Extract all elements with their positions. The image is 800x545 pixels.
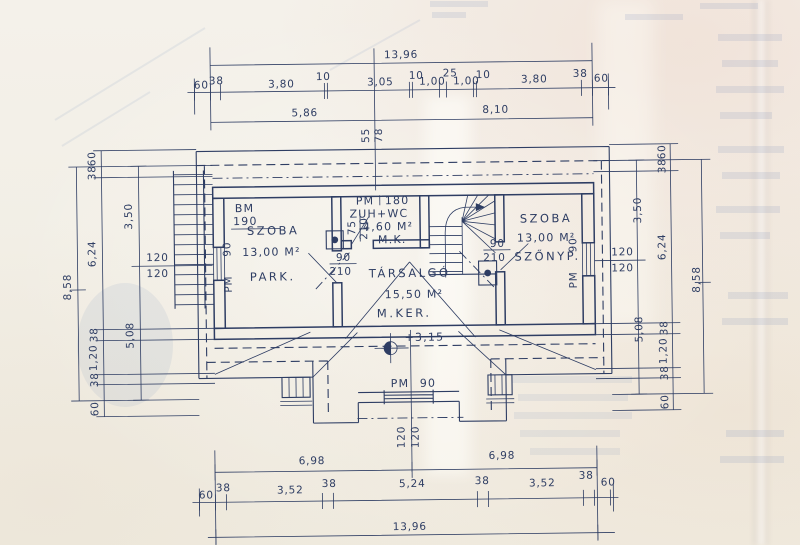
- window-left-pm: PM: [223, 276, 235, 293]
- dim-left-chain-2: 6,24: [86, 240, 98, 267]
- dim-bottom-window-1: 120: [410, 426, 422, 449]
- dim-bottom-total: 13,96: [393, 521, 427, 533]
- window-right-pm: PM: [568, 271, 580, 288]
- dim-top-10: 3,80: [521, 73, 548, 85]
- dim-left-window-0: 120: [146, 252, 169, 264]
- dim-left-inner-1: 5,08: [124, 322, 136, 349]
- dim-left-chain-4: 1,20: [88, 344, 100, 371]
- dim-top-wall-55: 55: [360, 128, 372, 143]
- lounge-window-pm: PM: [391, 377, 410, 390]
- dim-right-chain-6: 60: [659, 394, 671, 409]
- room-left-door-h: 210: [329, 266, 352, 278]
- dim-left-chain-1: 38: [86, 165, 98, 180]
- dim-right-total: 8,58: [691, 266, 703, 293]
- dim-right-chain-1: 38: [656, 158, 668, 173]
- exterior-stair-ladder: [173, 170, 214, 308]
- room-right-door-h: 210: [483, 252, 506, 264]
- room-left-labels: BM 190 SZOBA 13,00 M² PARK. 90 210 90 PM: [221, 201, 357, 293]
- room-lounge-name: TÁRSALGÓ: [368, 264, 451, 280]
- dim-left-chain-3: 38: [88, 327, 100, 342]
- dim-top-9: 10: [476, 69, 491, 81]
- dim-top-11: 38: [573, 68, 588, 80]
- dim-top-1: 38: [209, 75, 224, 87]
- dim-bottom-window-0: 120: [396, 426, 408, 449]
- dim-bottom-5: 38: [475, 475, 490, 487]
- dim-top-sub-0: 5,86: [291, 107, 318, 119]
- dim-bottom-7: 38: [579, 470, 594, 482]
- dim-right-inner-1: 5,08: [633, 316, 645, 343]
- room-lounge-area: 15,50 M²: [385, 288, 444, 302]
- room-bath-area: 4,60 M²: [363, 220, 413, 234]
- floor-plan-canvas: 13,96 60 38 3,80 10 3,05 10 1,00 25 1,00…: [0, 0, 800, 545]
- bath-pm-value: 180: [385, 194, 410, 207]
- window-right-width: 90: [567, 237, 579, 252]
- dim-bottom-6: 3,52: [529, 477, 556, 489]
- room-lounge-labels: TÁRSALGÓ 15,50 M² M.KER. +3,15 PM 90: [368, 264, 452, 390]
- chimney-hall: [479, 261, 497, 285]
- dim-top-2: 3,80: [268, 78, 295, 90]
- window-right: [582, 243, 594, 276]
- room-bath-labels: PM 180 ZUH+WC 4,60 M² M.K. 75 210: [346, 194, 414, 247]
- room-lounge-floor: M.KER.: [377, 306, 432, 321]
- bleed-through-block: [77, 283, 632, 455]
- dim-left-total: 8,58: [62, 274, 74, 301]
- dim-bottom-3: 38: [322, 478, 337, 490]
- window-bottom-left-barred: [280, 377, 312, 405]
- dim-right-chain-0: 60: [656, 144, 668, 159]
- bath-pm: PM: [356, 194, 375, 207]
- dim-top-0: 60: [194, 79, 209, 91]
- dim-right-chain-3: 38: [658, 320, 670, 335]
- dim-top-sub-1: 8,10: [482, 104, 509, 116]
- room-right-labels: SZOBA 13,00 M² SZŐNYP. 90 210 90 PM: [483, 211, 581, 290]
- room-right-name: SZOBA: [520, 211, 573, 226]
- lounge-level: +3,15: [405, 331, 445, 344]
- dim-left-inner-0: 3,50: [123, 203, 135, 230]
- dim-bottom-0: 60: [199, 489, 214, 501]
- bleed-roof-sketch: [55, 20, 420, 146]
- dim-left-chain-5: 38: [89, 372, 101, 387]
- dim-right-window-0: 120: [611, 246, 634, 258]
- room-left-area: 13,00 M²: [242, 245, 301, 259]
- scanned-floor-plan-sheet: 13,96 60 38 3,80 10 3,05 10 1,00 25 1,00…: [0, 0, 800, 545]
- dim-left-window-1: 120: [146, 268, 169, 280]
- room-left-floor: PARK.: [250, 269, 296, 284]
- dim-bottom-sub-1: 6,98: [489, 450, 516, 462]
- bath-door-w: 75: [346, 220, 358, 235]
- dim-top-6: 1,00: [419, 75, 446, 87]
- dim-left-chain-0: 60: [86, 151, 98, 166]
- dim-left-chain-6: 60: [89, 401, 101, 416]
- dim-right-chain-4: 1,20: [657, 337, 669, 364]
- dim-top-12: 60: [594, 72, 609, 84]
- room-left-name: SZOBA: [247, 223, 300, 238]
- dim-top-3: 10: [316, 71, 331, 83]
- dim-right-chain-2: 6,24: [656, 233, 668, 260]
- dim-bottom-2: 3,52: [277, 484, 304, 496]
- room-bath-floor: M.K.: [378, 233, 407, 246]
- dim-bottom-8: 60: [601, 476, 616, 488]
- window-left-width: 90: [221, 242, 233, 257]
- window-bottom-right-barred: [486, 375, 514, 403]
- dim-top-wall-78: 78: [373, 128, 385, 143]
- dim-bottom-4: 5,24: [399, 478, 426, 490]
- label-bm: BM: [235, 202, 255, 215]
- dim-right-inner-0: 3,50: [632, 197, 644, 224]
- dim-top-4: 3,05: [367, 76, 394, 88]
- dim-right-window-1: 120: [611, 262, 634, 274]
- room-right-door-w: 90: [490, 238, 505, 250]
- dim-right-chain-5: 38: [659, 365, 671, 380]
- drawing: 13,96 60 38 3,80 10 3,05 10 1,00 25 1,00…: [59, 41, 715, 545]
- dim-bottom-1: 38: [216, 482, 231, 494]
- axis-lines: [374, 48, 412, 472]
- dim-bottom-sub-0: 6,98: [299, 455, 326, 467]
- dim-top-total: 13,96: [384, 49, 418, 61]
- lounge-window-w: 90: [420, 377, 437, 390]
- room-left-door-w: 90: [336, 252, 351, 264]
